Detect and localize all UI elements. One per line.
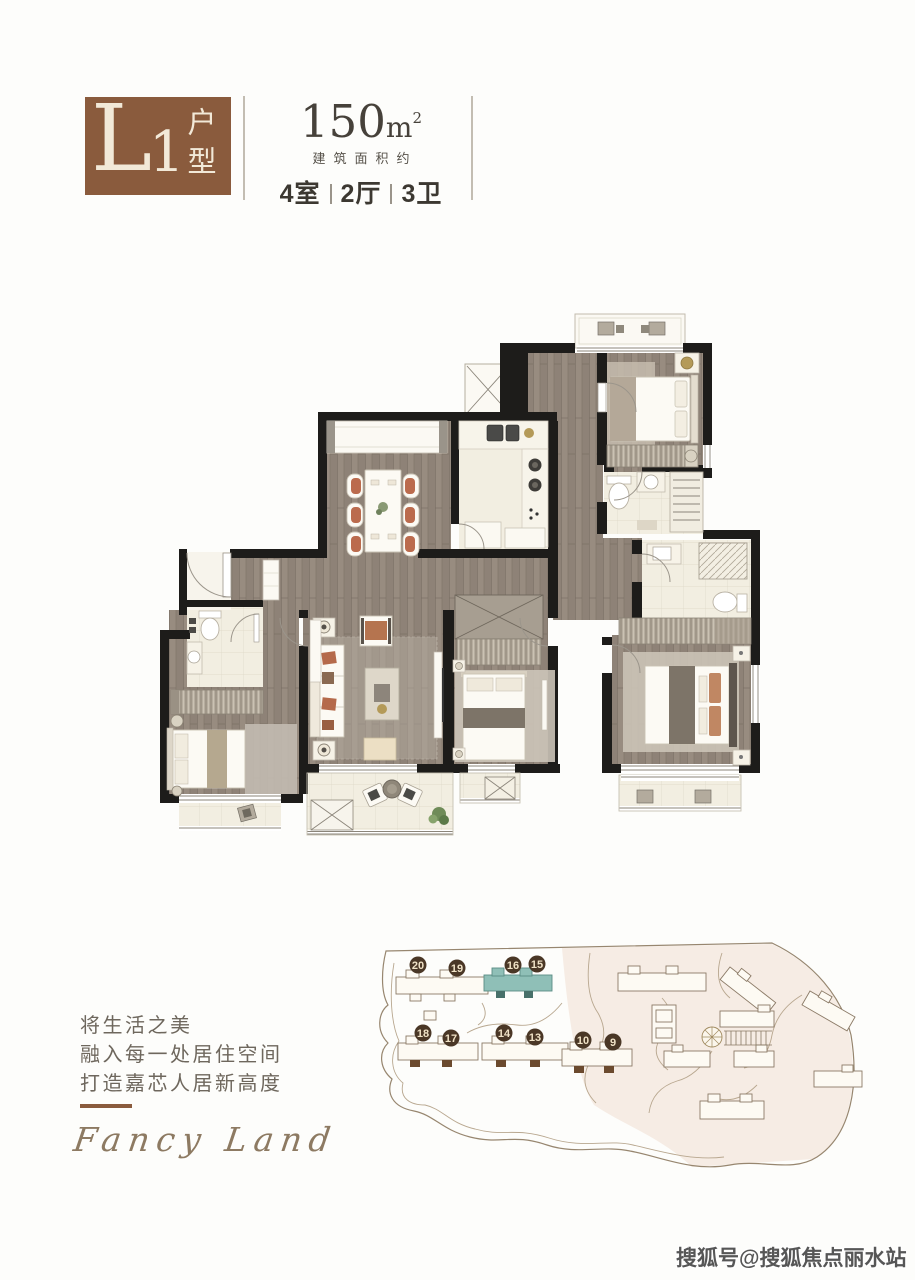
brand-signature: Fancy Land <box>71 1120 340 1159</box>
marker-16: 16 <box>505 957 522 974</box>
svg-text:13: 13 <box>529 1032 541 1044</box>
lamp <box>171 715 183 727</box>
area-label: 建筑面积约 <box>252 148 470 167</box>
svg-text:14: 14 <box>498 1028 511 1040</box>
sink <box>644 475 658 489</box>
sideboard <box>327 421 447 453</box>
watermark: 搜狐号@搜狐焦点丽水站 <box>676 1242 906 1272</box>
svg-text:16: 16 <box>507 960 519 972</box>
site-map: 20 19 16 15 18 17 14 13 10 9 <box>362 933 890 1183</box>
sink <box>188 651 200 663</box>
separator-bar <box>330 184 332 204</box>
lamp <box>172 786 182 796</box>
svg-text:15: 15 <box>531 959 543 971</box>
hall-cabinet <box>310 620 321 682</box>
chair-sketch <box>695 790 711 803</box>
marker-10: 10 <box>575 1032 592 1049</box>
kitchen-cabinet <box>505 528 545 548</box>
marker-14: 14 <box>496 1025 513 1042</box>
marker-15: 15 <box>529 956 546 973</box>
area-value-line: 150m2 <box>252 99 470 144</box>
sink <box>487 425 503 441</box>
balcony-desk <box>649 322 665 335</box>
unit-type-badge: L 1 户型 <box>85 97 231 195</box>
rooms-count: 4室 <box>280 180 321 208</box>
svg-text:17: 17 <box>445 1033 457 1045</box>
headboard <box>729 663 737 747</box>
marker-19: 19 <box>449 960 466 977</box>
balcony-chair <box>641 325 649 333</box>
amenity-structure <box>652 1005 676 1043</box>
header-divider-left <box>243 96 245 200</box>
tagline-line1: 将生活之美 <box>80 1012 283 1041</box>
tv-console <box>434 652 442 738</box>
wardrobe <box>607 445 698 467</box>
building-14-13 <box>482 1036 568 1067</box>
building-18-17 <box>398 1036 478 1067</box>
building-16-15-highlight <box>484 968 552 998</box>
bedroom-northeast <box>598 353 699 467</box>
svg-text:19: 19 <box>451 963 463 975</box>
marker-17: 17 <box>443 1030 460 1047</box>
shoe-cabinet <box>263 560 279 600</box>
tagline-line3: 打造嘉芯人居新高度 <box>80 1070 283 1099</box>
wardrobe <box>171 690 263 714</box>
shower <box>699 543 747 579</box>
chair-sketch <box>637 790 653 803</box>
bedroom-southeast <box>612 618 751 765</box>
svg-text:9: 9 <box>610 1037 616 1049</box>
area-unit: m <box>386 111 413 144</box>
area-exponent: 2 <box>412 109 422 127</box>
unit-type-label: 户型 <box>179 107 221 185</box>
central-plaza <box>702 1027 722 1047</box>
bathtub <box>670 472 703 532</box>
room-count-line: 4室2厅3卫 <box>252 174 470 210</box>
marker-20: 20 <box>410 957 427 974</box>
tagline-line2: 融入每一处居住空间 <box>80 1041 283 1070</box>
tagline-block: 将生活之美 融入每一处居住空间 打造嘉芯人居新高度 <box>80 1012 283 1099</box>
header-divider-right <box>471 96 473 200</box>
toilet <box>713 592 737 612</box>
floorplan-poster: L 1 户型 150m2 建筑面积约 4室2厅3卫 <box>0 0 915 1280</box>
unit-letter: L <box>91 81 152 196</box>
toilet <box>201 618 219 640</box>
toilet <box>609 483 629 509</box>
area-value: 150 <box>300 95 386 148</box>
kitchen-island <box>465 522 501 548</box>
balcony-chair <box>616 325 624 333</box>
tv <box>442 668 444 722</box>
tv-console <box>542 680 547 730</box>
svg-text:18: 18 <box>417 1028 429 1040</box>
accent-rule <box>80 1104 132 1108</box>
svg-text:20: 20 <box>412 960 424 972</box>
marker-13: 13 <box>527 1029 544 1046</box>
headboard <box>167 728 173 790</box>
balcony-desk <box>598 322 614 335</box>
halls-count: 2厅 <box>341 180 382 208</box>
marker-18: 18 <box>415 1025 432 1042</box>
floor-plan <box>155 300 765 845</box>
ottoman <box>364 738 396 760</box>
living-room <box>310 616 444 760</box>
baths-count: 3卫 <box>401 180 442 208</box>
rug <box>245 724 297 794</box>
marker-9: 9 <box>605 1034 622 1051</box>
bedroom-center <box>453 595 555 762</box>
area-block: 150m2 建筑面积约 4室2厅3卫 <box>252 99 470 210</box>
separator-bar <box>390 184 392 204</box>
building-20-19 <box>396 970 488 1020</box>
north-balcony <box>575 314 685 353</box>
svg-text:10: 10 <box>577 1035 589 1047</box>
